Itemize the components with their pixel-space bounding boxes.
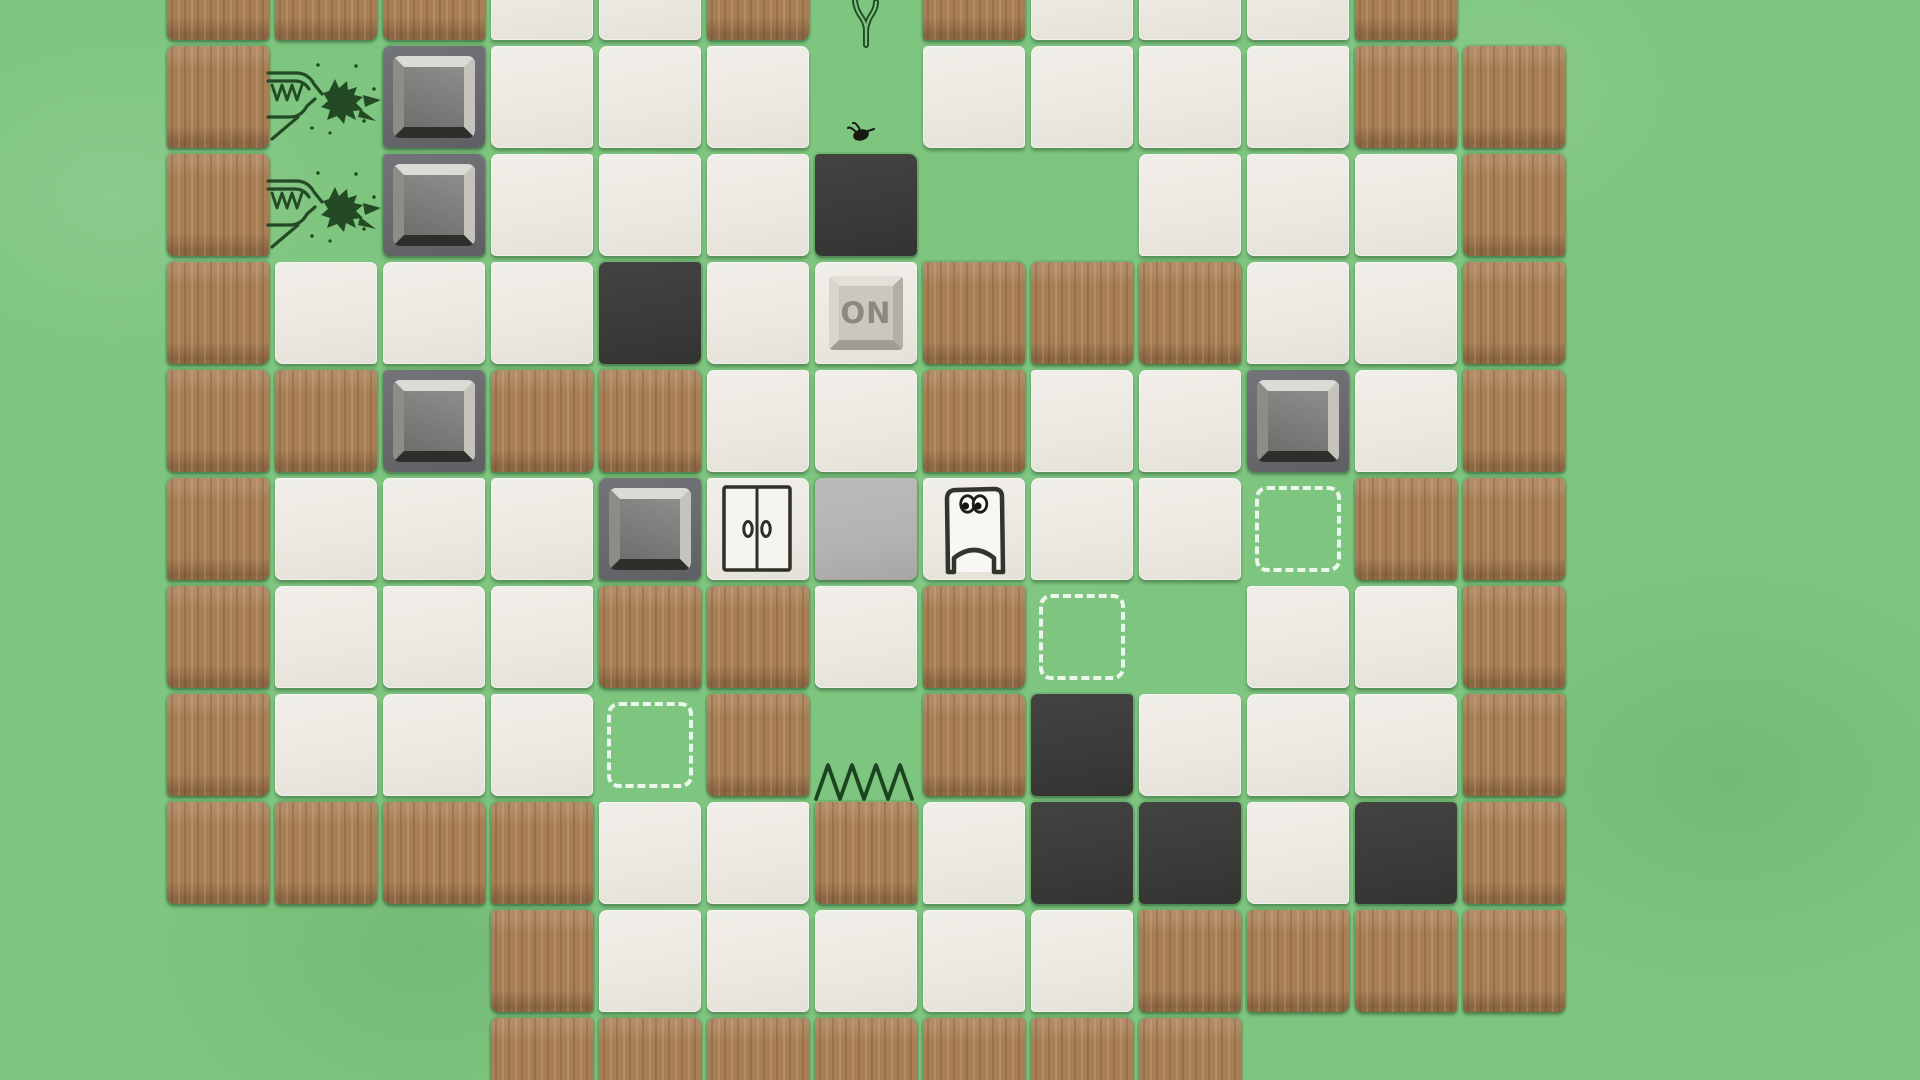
wood-tile <box>1139 262 1241 364</box>
wood-tile <box>167 802 269 904</box>
stone-pad-tile <box>383 370 485 472</box>
floor-tile <box>1247 262 1349 364</box>
wood-tile <box>1463 370 1565 472</box>
floor-tile <box>1139 154 1241 256</box>
target-marker <box>1039 594 1125 680</box>
dark-tile <box>599 262 701 364</box>
wood-tile <box>1031 1018 1133 1080</box>
wood-tile <box>491 370 593 472</box>
floor-tile <box>275 478 377 580</box>
floor-tile <box>275 262 377 364</box>
stone-block[interactable] <box>393 380 475 462</box>
floor-tile <box>491 478 593 580</box>
wood-tile <box>1463 586 1565 688</box>
target-marker <box>607 702 693 788</box>
wood-tile <box>1463 262 1565 364</box>
stone-block[interactable] <box>393 56 475 138</box>
floor-tile <box>815 586 917 688</box>
wood-tile <box>1463 910 1565 1012</box>
wood-tile <box>167 370 269 472</box>
on-button-tile: ON <box>815 262 917 364</box>
floor-tile <box>1031 478 1133 580</box>
wood-tile <box>275 0 377 40</box>
wood-tile <box>923 0 1025 40</box>
floor-tile <box>707 910 809 1012</box>
floor-tile <box>1139 0 1241 40</box>
floor-tile <box>1247 694 1349 796</box>
floor-tile <box>491 0 593 40</box>
wood-tile <box>167 478 269 580</box>
wood-tile <box>923 694 1025 796</box>
floor-tile <box>1031 370 1133 472</box>
floor-tile <box>1031 0 1133 40</box>
stone-pad-tile <box>599 478 701 580</box>
stone-pad-tile <box>383 154 485 256</box>
floor-tile <box>383 262 485 364</box>
stone-block[interactable] <box>1257 380 1339 462</box>
wood-tile <box>167 46 269 148</box>
floor-tile <box>1355 586 1457 688</box>
wood-tile <box>275 802 377 904</box>
floor-tile <box>707 262 809 364</box>
wood-tile <box>1463 154 1565 256</box>
floor-tile <box>599 802 701 904</box>
floor-tile <box>1355 370 1457 472</box>
wood-tile <box>383 0 485 40</box>
wood-tile <box>599 370 701 472</box>
floor-tile <box>923 802 1025 904</box>
floor-tile <box>923 910 1025 1012</box>
wood-tile <box>383 802 485 904</box>
wood-tile <box>1463 478 1565 580</box>
floor-tile <box>923 46 1025 148</box>
wood-tile <box>1355 0 1457 40</box>
floor-tile <box>707 802 809 904</box>
dark-tile <box>1031 694 1133 796</box>
floor-tile <box>815 910 917 1012</box>
wood-tile <box>1031 262 1133 364</box>
floor-tile <box>1139 694 1241 796</box>
floor-tile <box>1031 910 1133 1012</box>
floor-tile <box>383 478 485 580</box>
flame-creature <box>268 53 386 141</box>
floor-tile <box>1139 46 1241 148</box>
gray-slab-tile <box>815 478 917 580</box>
dark-tile <box>1031 802 1133 904</box>
floor-tile <box>491 586 593 688</box>
wood-tile <box>923 1018 1025 1080</box>
wood-tile <box>707 586 809 688</box>
floor-tile <box>815 370 917 472</box>
dark-tile <box>1139 802 1241 904</box>
door-tile[interactable] <box>707 478 809 580</box>
flame-creature <box>268 161 386 249</box>
dark-tile <box>815 154 917 256</box>
wood-tile <box>923 586 1025 688</box>
dark-tile <box>1355 802 1457 904</box>
wood-tile <box>491 802 593 904</box>
wood-tile <box>599 586 701 688</box>
wood-tile <box>815 802 917 904</box>
wood-tile <box>1463 46 1565 148</box>
wood-tile <box>491 910 593 1012</box>
floor-tile <box>275 694 377 796</box>
wood-tile <box>167 154 269 256</box>
floor-tile <box>1355 694 1457 796</box>
wood-tile <box>167 694 269 796</box>
player-character[interactable] <box>924 477 1024 577</box>
wood-tile <box>707 0 809 40</box>
wood-tile <box>167 586 269 688</box>
floor-tile <box>491 262 593 364</box>
stone-pad-tile <box>383 46 485 148</box>
puzzle-board: ON <box>0 0 1920 1080</box>
floor-tile <box>1355 262 1457 364</box>
floor-tile <box>491 46 593 148</box>
wood-tile <box>275 370 377 472</box>
stone-block[interactable] <box>609 488 691 570</box>
spikes-icon <box>814 753 918 803</box>
wood-tile <box>815 1018 917 1080</box>
floor-tile <box>707 154 809 256</box>
stone-block[interactable] <box>393 164 475 246</box>
floor-tile <box>1031 46 1133 148</box>
floor-tile <box>599 910 701 1012</box>
wood-tile <box>923 262 1025 364</box>
wood-tile <box>1463 802 1565 904</box>
wood-tile <box>707 1018 809 1080</box>
wood-tile <box>1247 910 1349 1012</box>
wood-tile <box>167 0 269 40</box>
wood-tile <box>923 370 1025 472</box>
wood-tile <box>167 262 269 364</box>
on-button[interactable]: ON <box>829 276 903 350</box>
wood-tile <box>1139 910 1241 1012</box>
floor-tile <box>491 154 593 256</box>
wood-tile <box>599 1018 701 1080</box>
sapling-icon <box>846 0 886 46</box>
floor-tile <box>599 46 701 148</box>
floor-tile <box>1139 478 1241 580</box>
wood-tile <box>1355 478 1457 580</box>
door-icon <box>707 478 807 578</box>
floor-tile <box>1355 154 1457 256</box>
floor-tile <box>383 586 485 688</box>
wood-tile <box>1355 910 1457 1012</box>
floor-tile <box>383 694 485 796</box>
wood-tile <box>491 1018 593 1080</box>
wood-tile <box>707 694 809 796</box>
floor-tile <box>1247 154 1349 256</box>
floor-tile <box>491 694 593 796</box>
floor-tile <box>1247 46 1349 148</box>
floor-tile <box>1247 802 1349 904</box>
floor-tile <box>707 46 809 148</box>
wood-tile <box>1463 694 1565 796</box>
wood-tile <box>1355 46 1457 148</box>
floor-tile <box>599 154 701 256</box>
fly-icon <box>846 117 876 147</box>
floor-tile <box>1139 370 1241 472</box>
stone-pad-tile <box>1247 370 1349 472</box>
on-button-label: ON <box>841 296 892 330</box>
floor-tile <box>275 586 377 688</box>
floor-tile <box>599 0 701 40</box>
target-marker <box>1255 486 1341 572</box>
floor-tile <box>1247 586 1349 688</box>
wood-tile <box>1139 1018 1241 1080</box>
floor-tile <box>707 370 809 472</box>
floor-tile <box>1247 0 1349 40</box>
